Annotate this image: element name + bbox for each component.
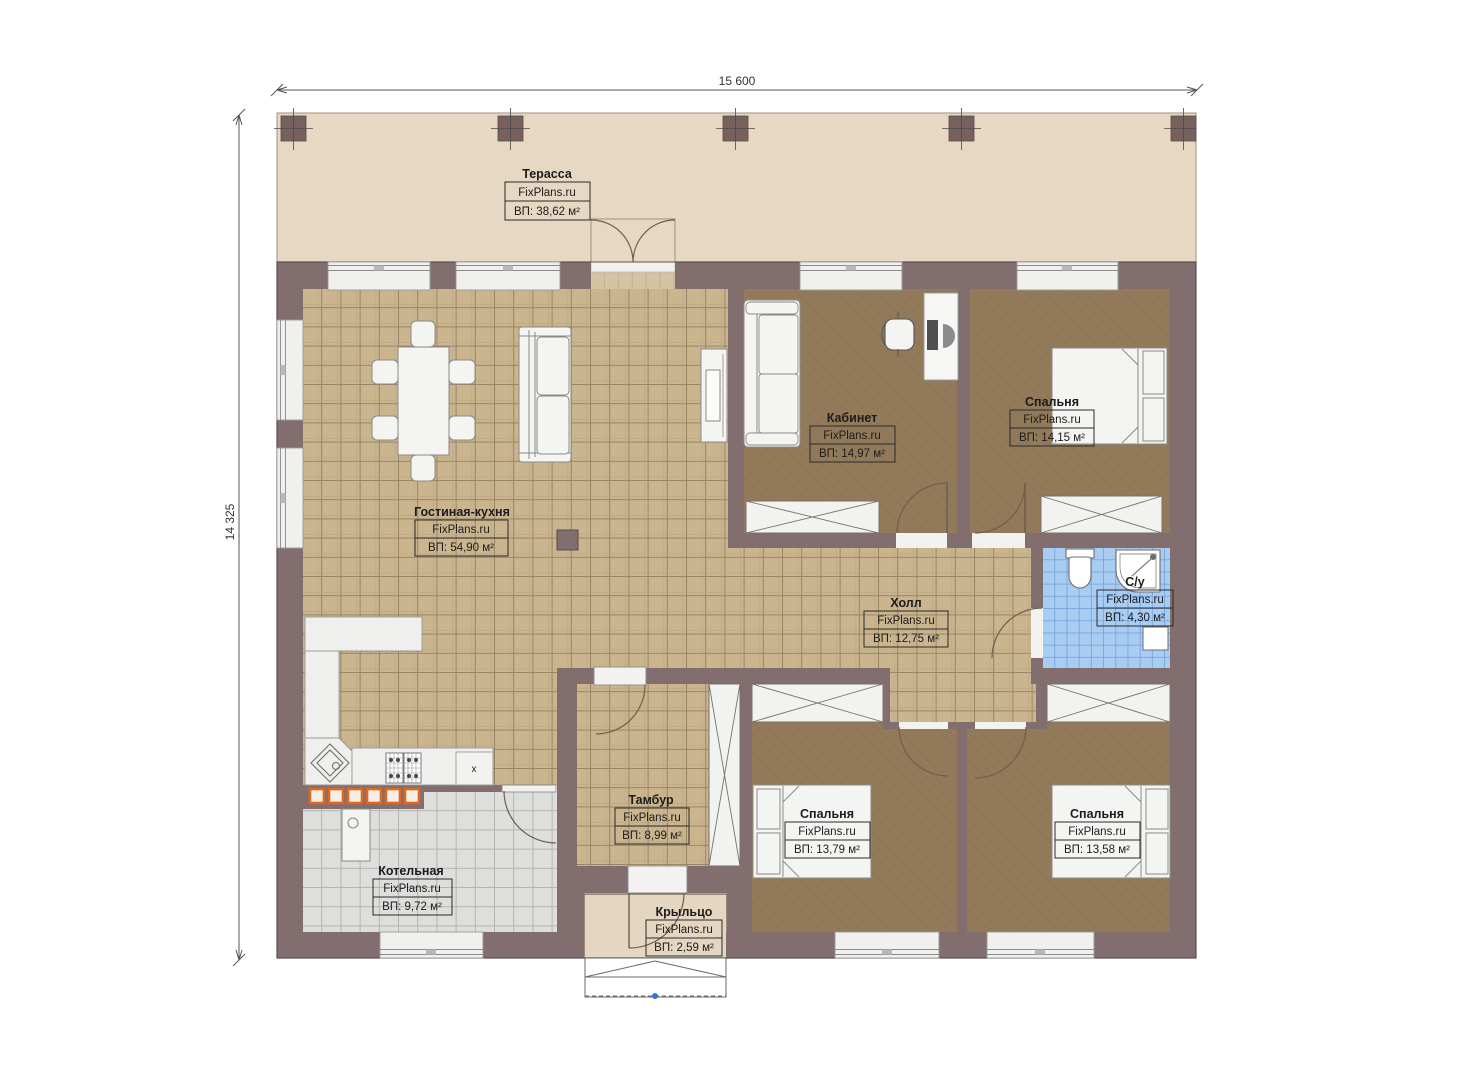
svg-text:ВП: 9,72 м²: ВП: 9,72 м² — [382, 901, 442, 913]
svg-text:Терасса: Терасса — [522, 167, 573, 181]
svg-text:ВП: 14,15 м²: ВП: 14,15 м² — [1019, 432, 1085, 444]
svg-text:Спальня: Спальня — [800, 807, 854, 821]
svg-text:Холл: Холл — [890, 596, 921, 610]
svg-text:FixPlans.ru: FixPlans.ru — [1023, 414, 1081, 426]
svg-text:ВП: 12,75 м²: ВП: 12,75 м² — [873, 633, 939, 645]
svg-text:FixPlans.ru: FixPlans.ru — [823, 430, 881, 442]
svg-text:ВП: 2,59 м²: ВП: 2,59 м² — [654, 942, 714, 954]
svg-text:ВП: 13,79 м²: ВП: 13,79 м² — [794, 844, 860, 856]
svg-text:FixPlans.ru: FixPlans.ru — [383, 883, 441, 895]
svg-text:С/у: С/у — [1125, 575, 1145, 589]
svg-text:x: x — [472, 764, 477, 775]
svg-text:Спальня: Спальня — [1025, 395, 1079, 409]
svg-text:Спальня: Спальня — [1070, 807, 1124, 821]
svg-text:Гостиная-кухня: Гостиная-кухня — [414, 505, 510, 519]
svg-text:15 600: 15 600 — [719, 74, 756, 88]
svg-text:ВП: 38,62 м²: ВП: 38,62 м² — [514, 206, 580, 218]
svg-text:FixPlans.ru: FixPlans.ru — [1068, 826, 1126, 838]
svg-text:14 325: 14 325 — [223, 503, 237, 540]
svg-text:ВП: 4,30 м²: ВП: 4,30 м² — [1105, 612, 1165, 624]
svg-text:ВП: 8,99 м²: ВП: 8,99 м² — [622, 830, 682, 842]
svg-text:FixPlans.ru: FixPlans.ru — [432, 524, 490, 536]
svg-text:Тамбур: Тамбур — [628, 793, 674, 807]
svg-text:FixPlans.ru: FixPlans.ru — [1106, 594, 1164, 606]
svg-text:Крыльцо: Крыльцо — [656, 905, 713, 919]
svg-text:FixPlans.ru: FixPlans.ru — [655, 924, 713, 936]
svg-text:FixPlans.ru: FixPlans.ru — [798, 826, 856, 838]
svg-text:Котельная: Котельная — [378, 864, 443, 878]
svg-text:ВП: 14,97 м²: ВП: 14,97 м² — [819, 448, 885, 460]
svg-text:FixPlans.ru: FixPlans.ru — [877, 615, 935, 627]
svg-text:ВП: 13,58 м²: ВП: 13,58 м² — [1064, 844, 1130, 856]
svg-text:ВП: 54,90 м²: ВП: 54,90 м² — [428, 542, 494, 554]
svg-text:Кабинет: Кабинет — [827, 411, 878, 425]
svg-text:FixPlans.ru: FixPlans.ru — [518, 187, 576, 199]
svg-text:FixPlans.ru: FixPlans.ru — [623, 812, 681, 824]
